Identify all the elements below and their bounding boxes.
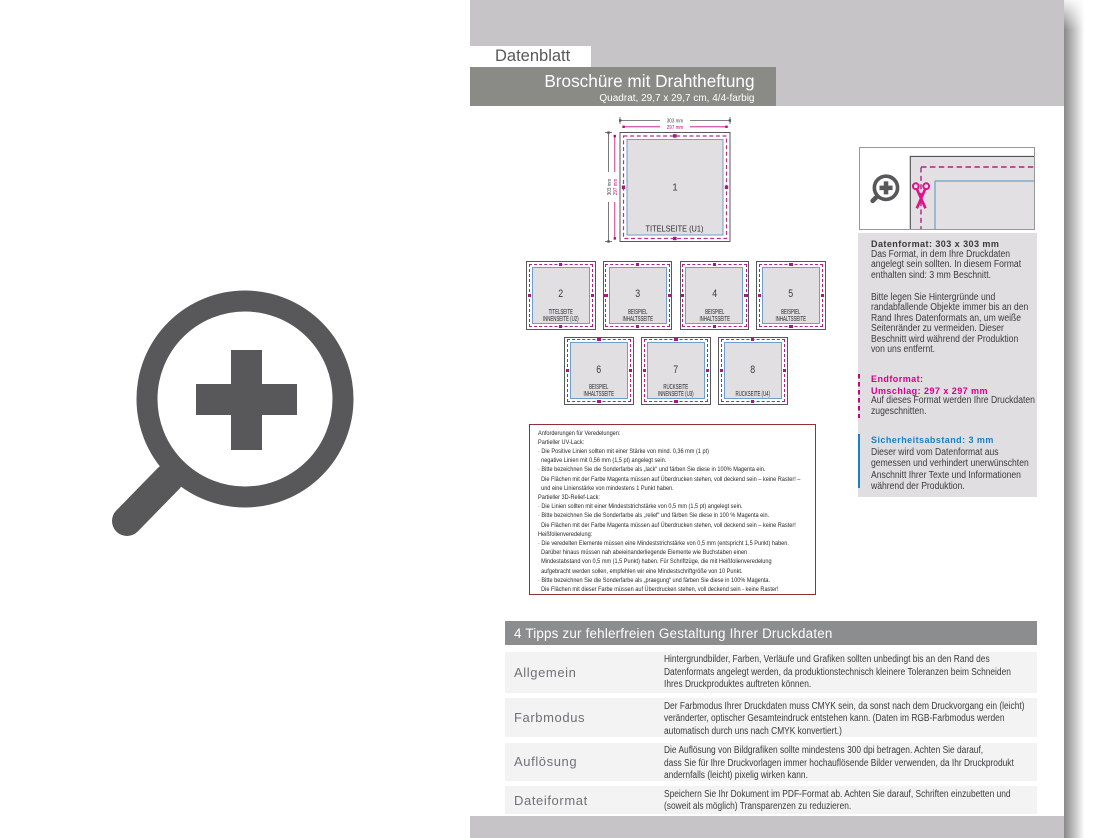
svg-text:1: 1	[672, 183, 678, 194]
svg-text:297 mm: 297 mm	[667, 125, 684, 131]
svg-text:297 mm: 297 mm	[613, 178, 619, 195]
svg-text:TITELSEITE (U1): TITELSEITE (U1)	[646, 225, 704, 234]
